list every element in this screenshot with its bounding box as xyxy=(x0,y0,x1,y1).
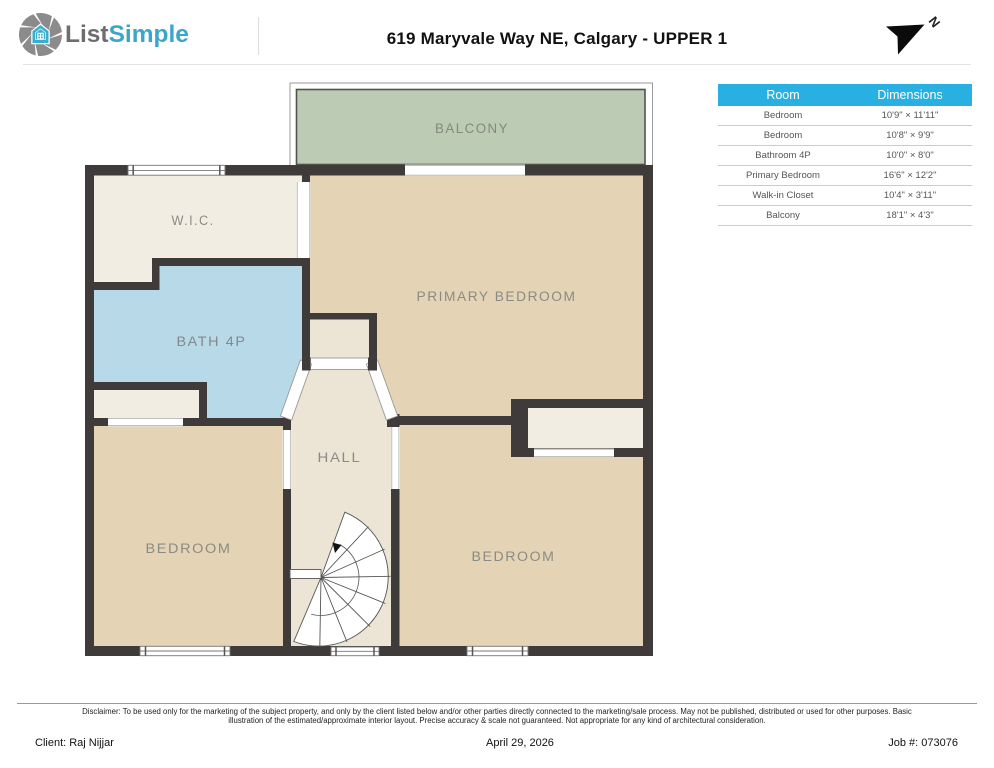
svg-text:BALCONY: BALCONY xyxy=(435,121,509,136)
svg-text:BEDROOM: BEDROOM xyxy=(146,541,232,556)
svg-text:PRIMARY BEDROOM: PRIMARY BEDROOM xyxy=(417,289,577,304)
svg-text:HALL: HALL xyxy=(318,450,362,465)
svg-text:BATH 4P: BATH 4P xyxy=(177,334,247,349)
svg-text:BEDROOM: BEDROOM xyxy=(472,549,556,564)
svg-text:W.I.C.: W.I.C. xyxy=(172,213,215,228)
